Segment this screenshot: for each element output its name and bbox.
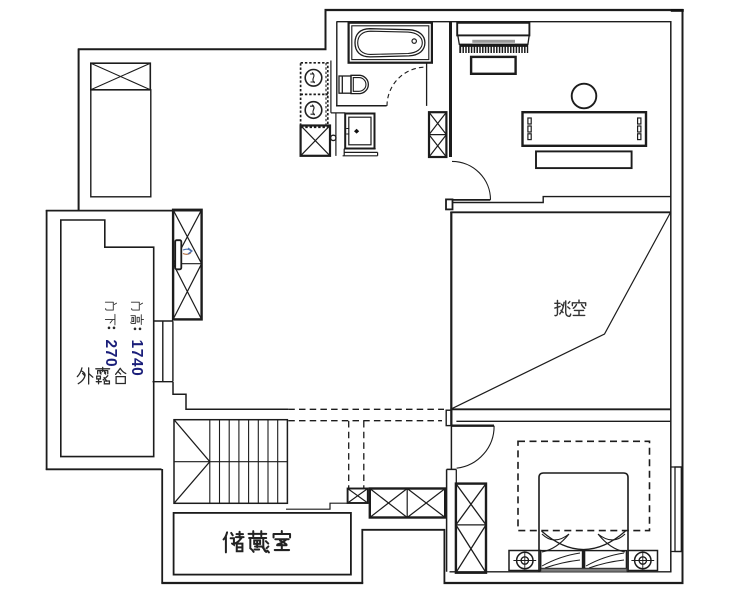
- svg-text:1740: 1740: [128, 340, 145, 377]
- svg-text:270: 270: [102, 340, 119, 368]
